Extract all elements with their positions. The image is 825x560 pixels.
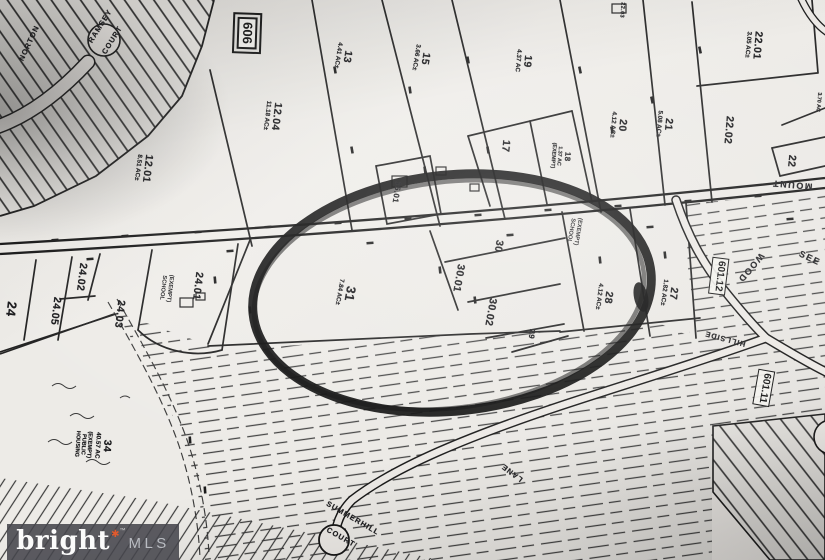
summerhill-culdesac [319, 525, 349, 555]
subdivision-hatch-bottomright [712, 414, 825, 560]
plat-map-linework [0, 0, 825, 560]
plat-map-photo: 12.04 11.18 AC± 12.01 8.51 AC± 13 4.41 A… [0, 0, 825, 560]
